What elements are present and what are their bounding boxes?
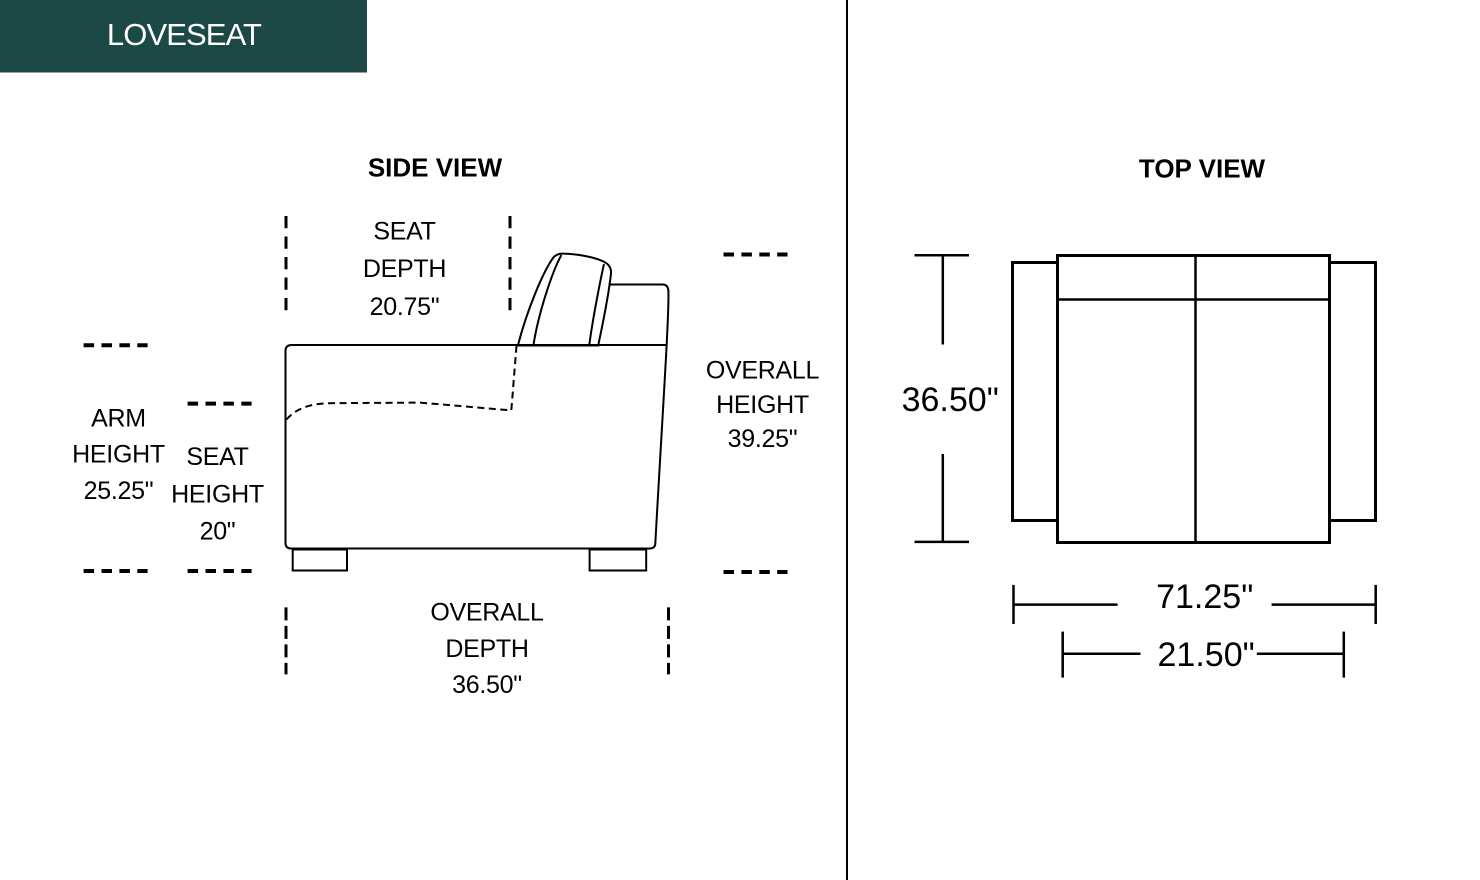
svg-text:HEIGHT: HEIGHT [72,440,165,468]
svg-text:71.25": 71.25" [1156,578,1253,616]
svg-text:ARM: ARM [91,405,146,433]
svg-text:25.25": 25.25" [84,477,154,505]
svg-text:HEIGHT: HEIGHT [171,481,264,509]
svg-text:OVERALL: OVERALL [430,599,544,627]
svg-text:LOVESEAT: LOVESEAT [107,17,262,52]
svg-text:SEAT: SEAT [373,217,435,245]
svg-text:SIDE VIEW: SIDE VIEW [368,153,503,183]
svg-text:TOP VIEW: TOP VIEW [1139,154,1266,184]
svg-text:HEIGHT: HEIGHT [716,391,809,419]
svg-text:SEAT: SEAT [186,443,248,471]
svg-text:21.50": 21.50" [1158,636,1255,674]
svg-text:36.50": 36.50" [452,671,522,699]
svg-text:OVERALL: OVERALL [706,357,820,385]
svg-text:20.75": 20.75" [370,293,440,321]
svg-text:36.50": 36.50" [902,381,999,419]
svg-text:DEPTH: DEPTH [445,635,528,663]
svg-text:DEPTH: DEPTH [363,255,446,283]
svg-text:39.25": 39.25" [728,425,798,453]
svg-text:20": 20" [200,518,236,546]
